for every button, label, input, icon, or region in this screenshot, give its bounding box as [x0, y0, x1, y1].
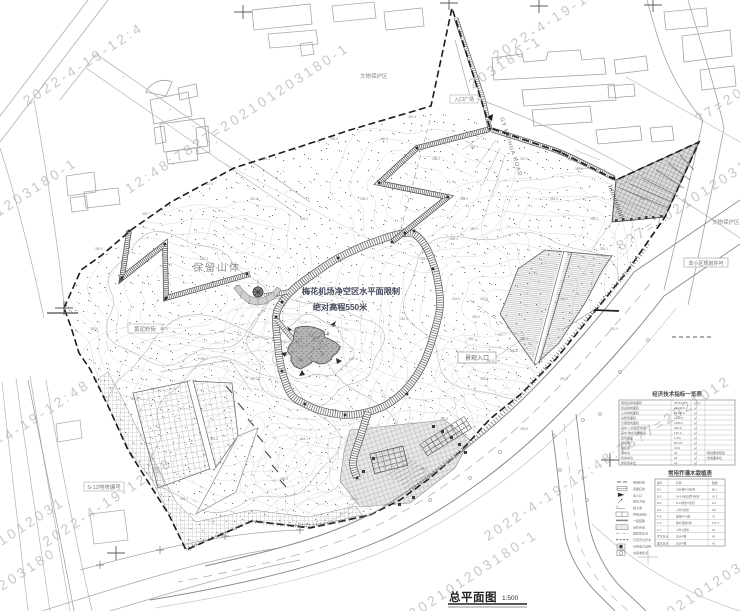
svg-text:㎡: ㎡ — [694, 405, 697, 410]
svg-text:㎡: ㎡ — [694, 415, 697, 420]
svg-text:358.2: 358.2 — [432, 157, 440, 161]
svg-text:72: 72 — [712, 515, 716, 519]
svg-text:352.0: 352.0 — [160, 327, 168, 331]
svg-text:建筑密度: 建筑密度 — [621, 435, 633, 440]
svg-text:45: 45 — [712, 535, 716, 539]
svg-text:合计P株: 合计P株 — [676, 535, 686, 539]
svg-text:㎡: ㎡ — [694, 430, 697, 435]
svg-text:353.6: 353.6 — [420, 257, 428, 261]
svg-text:㎡: ㎡ — [694, 400, 697, 405]
svg-text:乔木总计: 乔木总计 — [657, 535, 668, 539]
svg-text:建设用地面积: 建设用地面积 — [621, 405, 639, 410]
svg-text:351.3: 351.3 — [590, 217, 598, 221]
svg-text:㎡: ㎡ — [694, 450, 697, 455]
svg-text:351.9: 351.9 — [610, 327, 618, 331]
svg-text:绝对高程550米: 绝对高程550米 — [313, 302, 368, 312]
svg-text:1.2%: 1.2% — [674, 436, 681, 440]
svg-text:停车位: 停车位 — [621, 450, 630, 455]
svg-text:357.7: 357.7 — [498, 333, 506, 337]
svg-text:容积率: 容积率 — [621, 445, 630, 450]
svg-text:356.3: 356.3 — [640, 197, 648, 201]
svg-text:静叶灌篱P球: 静叶灌篱P球 — [676, 521, 692, 525]
svg-text:9.6: 9.6 — [712, 501, 716, 505]
svg-text:文物保护区: 文物保护区 — [360, 72, 388, 80]
svg-text:小叶榕P20米冠: 小叶榕P20米冠 — [676, 488, 695, 492]
svg-text:㎡: ㎡ — [694, 440, 697, 445]
svg-text:灌球P4-6球: 灌球P4-6球 — [676, 515, 691, 519]
svg-text:358.4: 358.4 — [520, 337, 528, 341]
svg-text:356.7: 356.7 — [420, 467, 428, 471]
svg-text:已有电力设施: 已有电力设施 — [633, 544, 651, 549]
svg-text:排水方向: 排水方向 — [633, 499, 645, 504]
svg-text:354.2: 354.2 — [470, 145, 478, 149]
svg-text:S-12地块编号: S-12地块编号 — [87, 483, 121, 491]
svg-text:350.4: 350.4 — [250, 377, 258, 381]
svg-text:350.0: 350.0 — [674, 426, 682, 430]
svg-text:绿地率: 绿地率 — [621, 440, 630, 445]
svg-text:规划总用地面积: 规划总用地面积 — [621, 400, 642, 405]
svg-text:358.9: 358.9 — [360, 197, 368, 201]
svg-text:354.7: 354.7 — [560, 297, 568, 301]
svg-text:352.1: 352.1 — [262, 157, 270, 161]
svg-text:已有高大乔木: 已有高大乔木 — [633, 537, 651, 542]
svg-text:8-14米影P米冠: 8-14米影P米冠 — [676, 501, 695, 505]
svg-text:357.8: 357.8 — [350, 357, 358, 361]
svg-text:其中 物业管理用房: 其中 物业管理用房 — [621, 430, 646, 435]
svg-text:351.0: 351.0 — [600, 247, 608, 251]
svg-text:保留山体: 保留山体 — [193, 261, 241, 274]
svg-text:出入口: 出入口 — [633, 492, 642, 497]
svg-text:1420.5: 1420.5 — [674, 416, 684, 420]
svg-text:合计P株: 合计P株 — [676, 541, 686, 545]
svg-text:32: 32 — [674, 451, 678, 455]
svg-text:一级园路: 一级园路 — [633, 518, 645, 523]
svg-text:文物保护区: 文物保护区 — [712, 218, 740, 226]
svg-text:㎡: ㎡ — [694, 445, 697, 450]
svg-text:358.8: 358.8 — [520, 427, 528, 431]
svg-text:352.4: 352.4 — [510, 349, 518, 353]
svg-text:24300.0: 24300.0 — [674, 411, 685, 415]
svg-text:㎡: ㎡ — [694, 435, 697, 440]
svg-text:道路红线: 道路红线 — [633, 486, 645, 491]
svg-text:356.2: 356.2 — [450, 237, 458, 241]
svg-text:355.7: 355.7 — [200, 357, 208, 361]
svg-text:黄泥岭街: 黄泥岭街 — [134, 325, 157, 333]
svg-text:挡土墙: 挡土墙 — [633, 505, 642, 510]
svg-text:㎡: ㎡ — [694, 425, 697, 430]
svg-text:用地红线: 用地红线 — [633, 480, 645, 485]
svg-text:137.1: 137.1 — [712, 521, 719, 525]
svg-text:B-4: B-4 — [657, 508, 662, 512]
svg-text:353.0: 353.0 — [350, 497, 358, 501]
svg-text:350.3: 350.3 — [380, 137, 388, 141]
svg-text:355.2: 355.2 — [300, 217, 308, 221]
svg-text:85.6%: 85.6% — [674, 441, 683, 445]
svg-text:80.1: 80.1 — [712, 488, 718, 492]
svg-text:12: 12 — [674, 461, 678, 465]
svg-text:20: 20 — [674, 456, 678, 460]
svg-text:41.2: 41.2 — [712, 494, 718, 498]
svg-text:㎡: ㎡ — [694, 410, 697, 415]
svg-text:㎡: ㎡ — [694, 460, 697, 465]
svg-text:356.8: 356.8 — [440, 417, 448, 421]
svg-text:C-6: C-6 — [657, 521, 662, 525]
svg-text:355.1: 355.1 — [180, 497, 188, 501]
svg-text:总平面图: 总平面图 — [449, 590, 497, 604]
svg-text:356.1: 356.1 — [468, 337, 476, 341]
svg-text:350.9: 350.9 — [130, 397, 138, 401]
svg-text:357.4: 357.4 — [205, 182, 213, 186]
svg-text:357.3: 357.3 — [200, 257, 208, 261]
svg-text:垃圾收集点: 垃圾收集点 — [633, 550, 648, 555]
svg-text:94: 94 — [712, 528, 716, 532]
svg-text:梅花机场净空区水平面限制: 梅花机场净空区水平面限制 — [302, 286, 400, 296]
svg-text:非机动车位: 非机动车位 — [621, 460, 636, 465]
svg-text:0.04: 0.04 — [674, 446, 680, 450]
svg-text:入口广场: 入口广场 — [454, 96, 474, 103]
svg-text:120.0: 120.0 — [674, 431, 682, 435]
svg-text:经济技术指标一览表: 经济技术指标一览表 — [652, 390, 702, 398]
svg-text:353.1: 353.1 — [480, 377, 488, 381]
svg-text:㎡: ㎡ — [694, 455, 697, 460]
svg-text:352.5: 352.5 — [400, 317, 408, 321]
svg-text:机动车位: 机动车位 — [621, 455, 633, 460]
svg-text:354.5: 354.5 — [452, 297, 460, 301]
svg-text:1:500: 1:500 — [502, 595, 519, 602]
svg-text:350.0: 350.0 — [95, 247, 103, 251]
svg-text:29140.6: 29140.6 — [674, 406, 685, 410]
svg-text:编号: 编号 — [657, 481, 663, 485]
svg-text:351.4: 351.4 — [480, 297, 488, 301]
svg-text:350.8: 350.8 — [486, 359, 494, 363]
svg-text:计容建筑面积: 计容建筑面积 — [621, 420, 639, 425]
svg-text:354.1: 354.1 — [300, 437, 308, 441]
svg-text:其中 公共配套用房: 其中 公共配套用房 — [621, 425, 646, 430]
svg-text:B-3: B-3 — [657, 501, 662, 505]
svg-text:41: 41 — [712, 541, 716, 545]
svg-text:㎡: ㎡ — [694, 420, 697, 425]
svg-text:B-1: B-1 — [657, 488, 662, 492]
svg-text:灌木总计: 灌木总计 — [657, 541, 668, 545]
svg-text:354.0: 354.0 — [472, 315, 480, 319]
svg-text:B-2: B-2 — [657, 494, 662, 498]
svg-text:352.9: 352.9 — [470, 227, 478, 231]
svg-text:350.5: 350.5 — [408, 115, 416, 119]
svg-text:公共绿地面积: 公共绿地面积 — [621, 410, 639, 415]
svg-text:351.5: 351.5 — [250, 197, 258, 201]
svg-text:356.6: 356.6 — [550, 197, 558, 201]
svg-text:名称: 名称 — [676, 481, 682, 485]
svg-text:354.6: 354.6 — [210, 437, 218, 441]
svg-text:规划要求配建: 规划要求配建 — [707, 450, 725, 455]
svg-text:园区排水沟: 园区排水沟 — [633, 531, 648, 536]
svg-text:352.6: 352.6 — [575, 167, 583, 171]
svg-text:355.6: 355.6 — [460, 197, 468, 201]
svg-text:小叶P冠米: 小叶P冠米 — [676, 508, 689, 512]
svg-text:358.3: 358.3 — [280, 477, 288, 481]
svg-text:357.2: 357.2 — [560, 377, 568, 381]
svg-text:355.8: 355.8 — [330, 137, 338, 141]
svg-text:14-16米高乔P米冠: 14-16米高乔P米冠 — [676, 494, 699, 498]
svg-text:353.5: 353.5 — [90, 327, 98, 331]
svg-text:含地面车位: 含地面车位 — [707, 455, 722, 460]
svg-text:台阶步道: 台阶步道 — [633, 524, 645, 529]
svg-text:357.9: 357.9 — [520, 157, 528, 161]
svg-text:常用乔灌木栽植表: 常用乔灌木栽植表 — [668, 469, 713, 477]
svg-text:小叶P冠米: 小叶P冠米 — [676, 528, 689, 532]
svg-text:1180.2: 1180.2 — [674, 421, 683, 425]
svg-text:35712.3: 35712.3 — [674, 401, 685, 405]
svg-text:P-5: P-5 — [657, 515, 662, 519]
svg-text:C-7: C-7 — [657, 528, 662, 532]
svg-text:数量: 数量 — [712, 481, 718, 485]
svg-text:8.8: 8.8 — [712, 508, 716, 512]
svg-text:总建筑面积: 总建筑面积 — [621, 415, 636, 420]
svg-text:353.7: 353.7 — [142, 212, 150, 216]
svg-text:本小区规划许可: 本小区规划许可 — [688, 260, 723, 267]
svg-text:管线(综合): 管线(综合) — [633, 512, 647, 517]
